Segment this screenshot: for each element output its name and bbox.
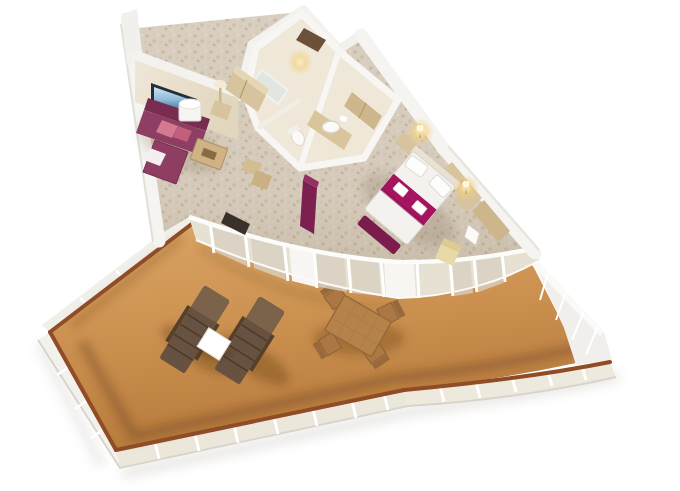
suite-floorplan	[0, 0, 680, 491]
bedside-lamp-glow	[406, 118, 434, 146]
suite-floorplan-svg	[0, 0, 680, 491]
entry-lamp-glow	[287, 49, 313, 75]
drum-lamp	[179, 99, 201, 121]
sink-basin	[322, 121, 340, 133]
bedside-lamp-glow	[453, 175, 479, 201]
solid-wall-section	[384, 261, 416, 298]
bedside-lamp	[463, 181, 470, 188]
bedside-lamp	[417, 125, 424, 132]
